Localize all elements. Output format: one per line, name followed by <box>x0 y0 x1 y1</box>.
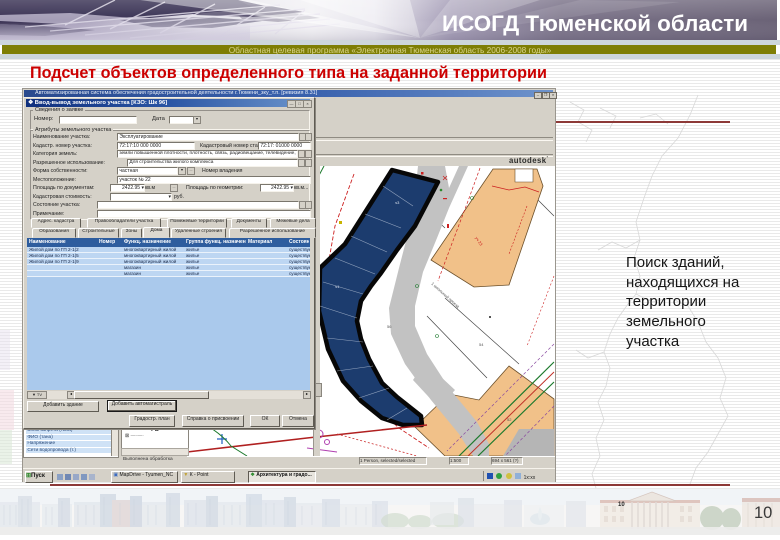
svg-text:52: 52 <box>507 417 512 422</box>
svg-text:56: 56 <box>387 324 392 329</box>
svg-text:1 школьный проезд: 1 школьный проезд <box>430 281 461 309</box>
svg-text:54: 54 <box>479 342 484 347</box>
